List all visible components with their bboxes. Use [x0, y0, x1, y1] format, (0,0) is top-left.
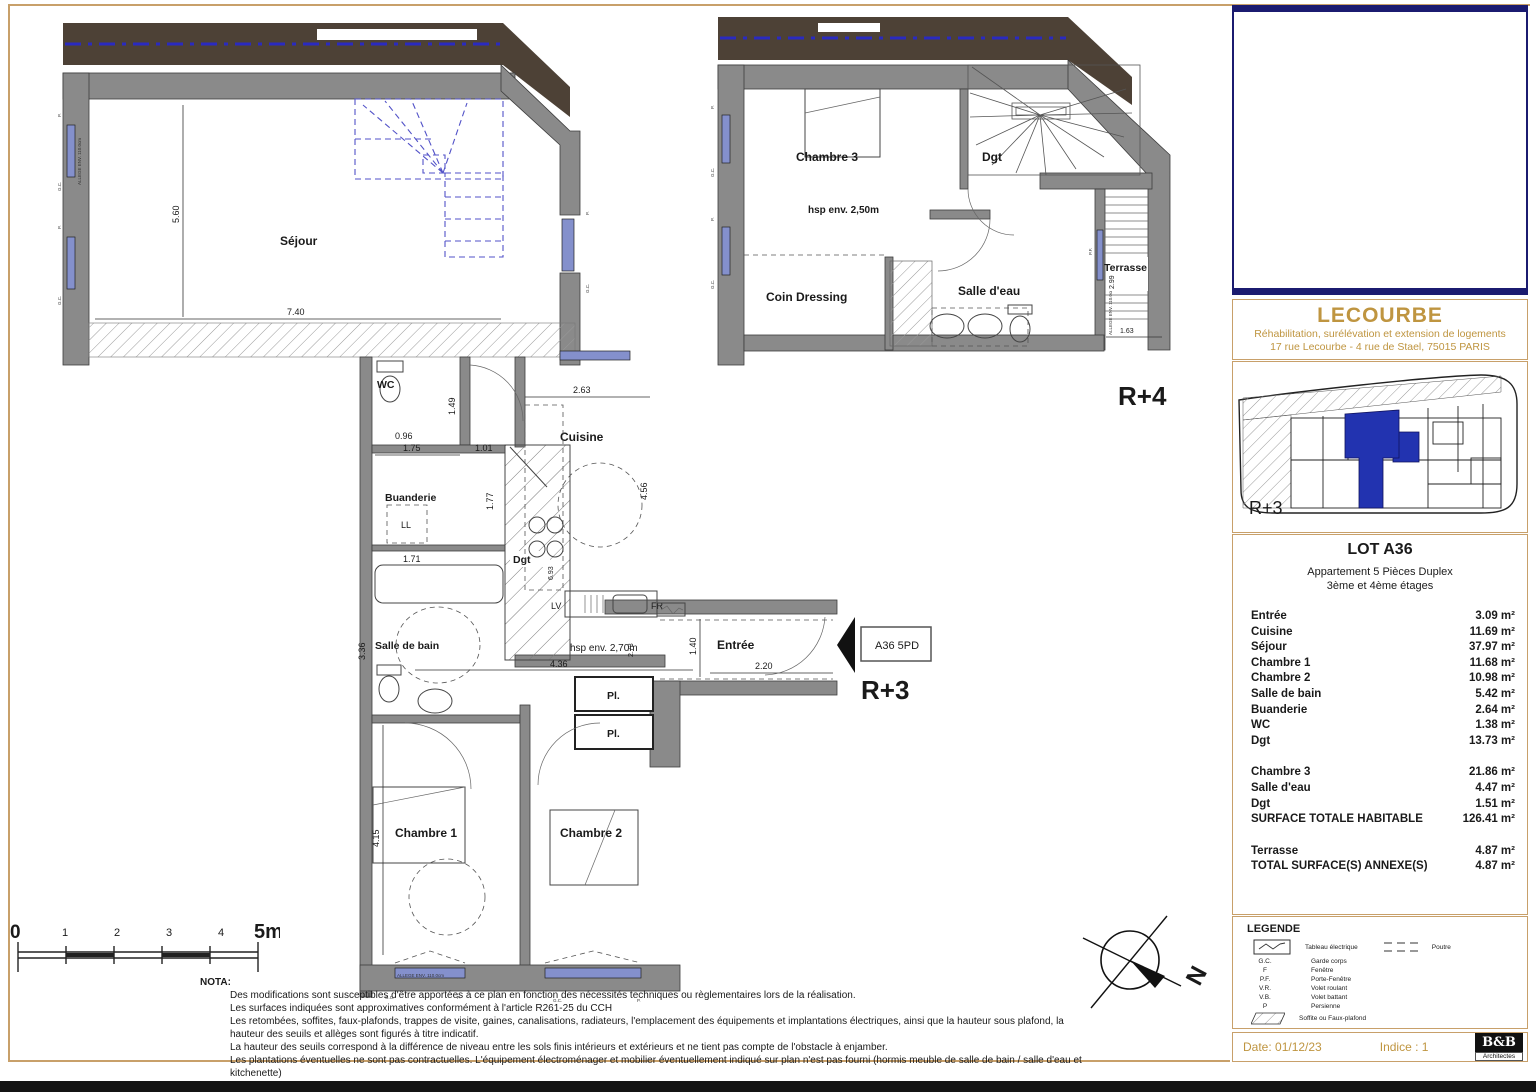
legend-row: G.C.Garde corps	[1233, 957, 1527, 966]
area-value: 4.47 m²	[1475, 781, 1515, 797]
legend-row: FFenêtre	[1233, 966, 1527, 975]
area-label: SURFACE TOTALE HABITABLE	[1251, 812, 1423, 828]
area-value: 11.69 m²	[1470, 625, 1515, 641]
legend-abbr: F	[1233, 966, 1297, 975]
area-value: 1.51 m²	[1475, 797, 1515, 813]
scale-0: 0	[10, 922, 21, 943]
legend-row: V.B.Volet battant	[1233, 993, 1527, 1002]
room-label-wc: WC	[377, 379, 395, 391]
dim-wc-h: 1.49	[447, 397, 457, 415]
area-label: Salle de bain	[1251, 687, 1321, 703]
dim-ent-w: 2.20	[755, 661, 773, 671]
scale-1: 1	[62, 927, 68, 939]
room-label-buanderie: Buanderie	[385, 492, 437, 504]
window-label-pf: P.F.	[1088, 248, 1093, 255]
room-label-terrasse: Terrasse	[1104, 262, 1147, 274]
area-row: Entrée3.09 m²	[1233, 609, 1527, 625]
keyplan-box: R+3	[1232, 361, 1528, 533]
architect-logo-mark: B&B	[1475, 1033, 1523, 1052]
area-label: Séjour	[1251, 640, 1287, 656]
room-label-cuisine: Cuisine	[560, 430, 604, 444]
window-label-p: P.	[710, 105, 715, 109]
legend-row: P.F.Porte-Fenêtre	[1233, 975, 1527, 984]
area-value: 11.68 m²	[1470, 656, 1515, 672]
north-letter: N	[1180, 961, 1212, 989]
nota-title: NOTA:	[200, 977, 231, 988]
roof-band-r4	[718, 17, 1132, 105]
room-entree: Entrée 2.20	[657, 603, 833, 679]
area-row: Dgt13.73 m²	[1233, 734, 1527, 750]
appliance-lv: LV	[551, 601, 561, 611]
nota-line: Les surfaces indiquées sont approximativ…	[230, 1002, 1100, 1015]
dim-bu-w: 1.75	[403, 443, 421, 453]
area-row: Buanderie2.64 m²	[1233, 703, 1527, 719]
dim-hall: 4.36	[550, 659, 568, 669]
area-value: 3.09 m²	[1475, 609, 1515, 625]
roof-band-r3	[63, 23, 570, 117]
lot-type: Appartement 5 Pièces Duplex 3ème et 4ème…	[1233, 565, 1527, 593]
architect-logo: B&B Architectes	[1475, 1033, 1523, 1061]
closets: Pl. Pl.	[575, 677, 653, 749]
hsp-r4: hsp env. 2,50m	[808, 205, 879, 216]
hsp-r3: hsp env. 2,70m	[570, 643, 638, 654]
area-value: 1.38 m²	[1475, 718, 1515, 734]
room-label-sejour: Séjour	[280, 234, 318, 248]
area-row: Chambre 321.86 m²	[1233, 765, 1527, 781]
room-label-dressing: Coin Dressing	[766, 290, 847, 304]
area-value: 126.41 m²	[1463, 812, 1515, 828]
area-row: Chambre 111.68 m²	[1233, 656, 1527, 672]
legend-abbr: V.B.	[1233, 993, 1297, 1002]
legend-title: LEGENDE	[1233, 917, 1527, 937]
area-value: 37.97 m²	[1469, 640, 1515, 656]
dim-sejour-w: 7.40	[287, 307, 305, 317]
footer-bar: Date: 01/12/23 Indice : 1 B&B Architecte…	[1232, 1032, 1528, 1062]
legend-label-poutre: Poutre	[1432, 943, 1451, 952]
legend-label-soffite: Soffite ou Faux-plafond	[1299, 1014, 1366, 1023]
window-label-p: P.	[710, 217, 715, 221]
room-label-ch2: Chambre 2	[560, 826, 622, 840]
scale-4: 4	[218, 927, 224, 939]
tableau-electrique-icon	[1253, 939, 1291, 955]
lot-title: LOT A36	[1233, 541, 1527, 559]
window-label-p: P.	[585, 211, 590, 215]
poutre-icon	[1384, 941, 1418, 953]
area-label: TOTAL SURFACE(S) ANNEXE(S)	[1251, 859, 1428, 875]
room-ch3: Chambre 3 hsp env. 2,50m	[796, 89, 880, 216]
legend-abbr: V.R.	[1233, 984, 1297, 993]
legend-label: Fenêtre	[1311, 966, 1333, 975]
legend-label: Porte-Fenêtre	[1311, 975, 1351, 984]
room-label-dgt-r4: Dgt	[982, 150, 1002, 164]
nota-line: La hauteur des seuils correspond à la di…	[230, 1041, 1100, 1054]
r4-walls	[718, 60, 1170, 365]
dim-bu-d: 1.01	[475, 443, 493, 453]
area-label: Terrasse	[1251, 844, 1298, 860]
room-label-ch3: Chambre 3	[796, 150, 858, 164]
dim-wc-w: 0.96	[395, 431, 413, 441]
area-row: Terrasse4.87 m²	[1233, 844, 1527, 860]
legend-label: Volet roulant	[1311, 984, 1347, 993]
area-value: 2.64 m²	[1475, 703, 1515, 719]
window-label-gc: G.C.	[710, 168, 715, 177]
nota-block: NOTA: Des modifications sont susceptible…	[200, 976, 1100, 1080]
area-label: Dgt	[1251, 734, 1270, 750]
dim-tub: 1.71	[403, 554, 421, 564]
project-subtitle-1: Réhabilitation, surélévation et extensio…	[1233, 328, 1527, 341]
area-label: Dgt	[1251, 797, 1270, 813]
room-label-sde: Salle d'eau	[958, 284, 1020, 298]
nota-line: Des modifications sont susceptibles d'êt…	[230, 989, 1100, 1002]
room-label-sdb: Salle de bain	[375, 640, 439, 652]
window-label-p: P.	[57, 225, 62, 229]
logo-box	[1232, 5, 1528, 295]
legend-label: Garde corps	[1311, 957, 1347, 966]
area-label: Chambre 2	[1251, 671, 1310, 687]
lot-type-line1: Appartement 5 Pièces Duplex	[1233, 565, 1527, 579]
area-row: Cuisine11.69 m²	[1233, 625, 1527, 641]
area-row: Séjour37.97 m²	[1233, 640, 1527, 656]
area-label: Chambre 1	[1251, 656, 1310, 672]
floor-plan-r4: P. G.C. P. G.C. P.F. ALLEGE ENV. 110.0cm…	[700, 5, 1180, 425]
room-label-dgt: Dgt	[513, 554, 531, 566]
dim-dgt-h: 6.93	[548, 566, 555, 580]
legend-row: V.R.Volet roulant	[1233, 984, 1527, 993]
legend-abbr: P.F.	[1233, 975, 1297, 984]
dim-bu-h: 1.77	[485, 492, 495, 510]
legend-label: Volet battant	[1311, 993, 1347, 1002]
dim-ent-h: 1.40	[688, 637, 698, 655]
area-value: 13.73 m²	[1469, 734, 1515, 750]
area-label: WC	[1251, 718, 1270, 734]
room-label-ch1: Chambre 1	[395, 826, 457, 840]
room-buanderie: 1.75 1.01 Buanderie 1.77 LL	[375, 443, 495, 543]
area-value: 10.98 m²	[1469, 671, 1515, 687]
scale-bar: 0 1 2 3 4 5m	[10, 920, 280, 980]
area-label: Salle d'eau	[1251, 781, 1311, 797]
dim-cui-w: 2.63	[573, 385, 591, 395]
area-row-total: SURFACE TOTALE HABITABLE126.41 m²	[1233, 812, 1527, 828]
soffite-icon	[1251, 1012, 1285, 1025]
area-value: 21.86 m²	[1469, 765, 1515, 781]
screenshot-bottom-bar	[0, 1081, 1536, 1092]
area-label: Entrée	[1251, 609, 1287, 625]
room-sdb: 1.71 Salle de bain 3.36	[357, 554, 503, 713]
keyplan-level: R+3	[1249, 498, 1283, 518]
footer-indice: Indice : 1	[1380, 1040, 1429, 1054]
legend-abbr: G.C.	[1233, 957, 1297, 966]
room-dgt: Dgt 6.93	[505, 445, 570, 660]
footer-date: Date: 01/12/23	[1243, 1040, 1322, 1054]
room-ch1: Chambre 1 4.15	[371, 723, 485, 955]
room-label-entree: Entrée	[717, 638, 755, 652]
appliance-ll: LL	[401, 520, 411, 530]
area-row: Chambre 210.98 m²	[1233, 671, 1527, 687]
project-subtitle-2: 17 rue Lecourbe - 4 rue de Stael, 75015 …	[1233, 341, 1527, 354]
room-dressing: Coin Dressing	[744, 255, 885, 304]
dim-cui-h: 4.56	[639, 482, 649, 500]
window-label-gc: G.C.	[57, 296, 62, 305]
area-row-total: TOTAL SURFACE(S) ANNEXE(S)4.87 m²	[1233, 859, 1527, 875]
scale-5m: 5m	[254, 921, 280, 943]
window-label-gc: G.C.	[710, 280, 715, 289]
soffite-hatch	[89, 323, 575, 357]
window-label-p: P.	[57, 113, 62, 117]
area-label: Buanderie	[1251, 703, 1307, 719]
closet-label: Pl.	[607, 690, 620, 702]
room-wc: WC 1.49 0.96	[377, 361, 523, 441]
unit-tag: A36 5PD	[875, 640, 919, 652]
dim-sejour-h: 5.60	[171, 205, 181, 223]
window-label-gc: G.C.	[585, 284, 590, 293]
project-title: LECOURBE	[1233, 304, 1527, 328]
floor-label-r4: R+4	[1118, 381, 1167, 411]
lot-box: LOT A36 Appartement 5 Pièces Duplex 3ème…	[1232, 534, 1528, 915]
legend-label-tableau: Tableau électrique	[1305, 943, 1358, 952]
window-label-allege: ALLEGE ENV. 110.0cm	[77, 138, 82, 185]
area-value: 4.87 m²	[1475, 859, 1515, 875]
closet-label: Pl.	[607, 728, 620, 740]
dim-sdb-h: 3.36	[357, 642, 367, 660]
legend-box: LEGENDE Tableau électrique Poutre G.C.Ga…	[1232, 916, 1528, 1029]
dim-terrasse-w: 1.63	[1120, 328, 1134, 335]
dim-terrasse-h: 2.99	[1109, 275, 1116, 289]
floor-label-r3: R+3	[861, 675, 909, 705]
keyplan-drawing: R+3	[1233, 362, 1527, 530]
scale-3: 3	[166, 927, 172, 939]
scale-2: 2	[114, 927, 120, 939]
area-label: Chambre 3	[1251, 765, 1310, 781]
nota-line: Les retombées, soffites, faux-plafonds, …	[230, 1015, 1100, 1041]
sheet-border-left	[8, 4, 10, 1062]
room-sde: Salle d'eau	[890, 219, 1032, 346]
architect-logo-sub: Architectes	[1475, 1052, 1523, 1061]
area-row: Dgt1.51 m²	[1233, 797, 1527, 813]
area-value: 5.42 m²	[1475, 687, 1515, 703]
project-box: LECOURBE Réhabilitation, surélévation et…	[1232, 299, 1528, 360]
legend-label: Persienne	[1311, 1002, 1340, 1011]
dim-ch1-h: 4.15	[371, 829, 381, 847]
area-value: 4.87 m²	[1475, 844, 1515, 860]
lot-type-line2: 3ème et 4ème étages	[1233, 579, 1527, 593]
stair-dashed-r3	[355, 99, 503, 257]
area-label: Cuisine	[1251, 625, 1293, 641]
area-row: Salle de bain5.42 m²	[1233, 687, 1527, 703]
entrance-arrow	[837, 617, 855, 673]
nota-line: Les plantations éventuelles ne sont pas …	[230, 1054, 1100, 1080]
area-row: Salle d'eau4.47 m²	[1233, 781, 1527, 797]
legend-row: PPersienne	[1233, 1002, 1527, 1011]
window-label-gc: G.C.	[57, 182, 62, 191]
area-row: WC1.38 m²	[1233, 718, 1527, 734]
legend-abbr: P	[1233, 1002, 1297, 1011]
